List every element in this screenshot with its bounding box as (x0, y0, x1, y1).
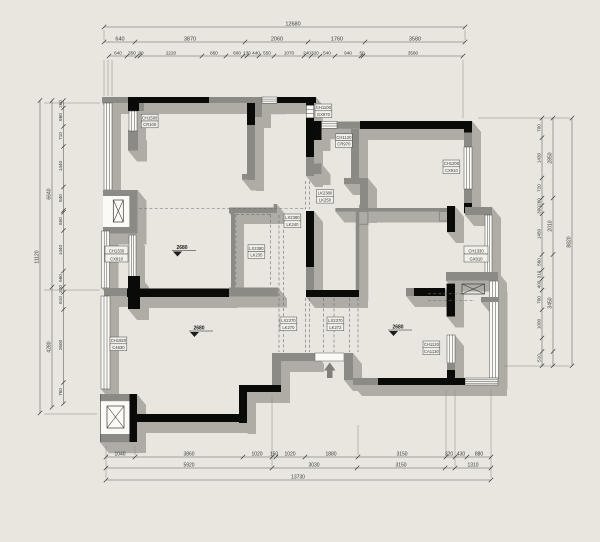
svg-text:3580: 3580 (409, 36, 421, 42)
svg-text:LK250: LK250 (319, 197, 332, 202)
svg-text:LK272: LK272 (329, 325, 342, 330)
svg-text:CH1120: CH1120 (336, 135, 352, 140)
svg-text:5920: 5920 (183, 462, 194, 468)
svg-text:3860: 3860 (183, 451, 194, 457)
svg-text:LK235: LK235 (250, 253, 263, 258)
svg-text:2600: 2600 (58, 339, 63, 350)
svg-text:2680: 2680 (193, 326, 204, 332)
svg-text:600: 600 (233, 50, 241, 55)
svg-text:1020: 1020 (251, 451, 262, 457)
svg-text:1070: 1070 (284, 50, 295, 55)
svg-text:CR970: CR970 (337, 142, 351, 147)
svg-text:710: 710 (58, 132, 63, 140)
svg-text:320: 320 (445, 451, 454, 457)
svg-text:1760: 1760 (331, 36, 343, 42)
svg-text:320: 320 (311, 50, 319, 55)
svg-text:650: 650 (58, 217, 63, 225)
svg-text:CH1100: CH1100 (316, 105, 332, 110)
svg-text:1440: 1440 (58, 160, 63, 171)
svg-text:440: 440 (252, 50, 260, 55)
svg-text:560: 560 (58, 274, 63, 282)
svg-text:CH1200: CH1200 (444, 161, 460, 166)
svg-text:310: 310 (536, 270, 541, 278)
svg-text:CX910: CX910 (110, 256, 123, 261)
svg-text:720: 720 (536, 184, 541, 192)
svg-text:200: 200 (58, 285, 63, 293)
svg-text:260: 260 (536, 198, 541, 206)
svg-text:610: 610 (58, 296, 63, 304)
svg-text:1430: 1430 (536, 152, 541, 163)
svg-text:CH1500: CH1500 (142, 115, 158, 120)
svg-text:2680: 2680 (392, 325, 403, 331)
svg-text:550: 550 (263, 50, 271, 55)
svg-text:CA1130: CA1130 (424, 349, 439, 354)
svg-text:1040: 1040 (114, 451, 125, 457)
svg-text:700: 700 (536, 296, 541, 304)
svg-text:760: 760 (58, 388, 63, 396)
svg-text:LK270: LK270 (282, 325, 295, 330)
svg-text:700: 700 (536, 124, 541, 132)
svg-text:GX910: GX910 (469, 256, 483, 261)
svg-text:560: 560 (536, 258, 541, 266)
svg-text:510: 510 (536, 354, 541, 362)
svg-text:8820: 8820 (566, 236, 572, 247)
svg-text:1440: 1440 (58, 244, 63, 255)
svg-text:3870: 3870 (184, 36, 196, 42)
svg-text:CH1330: CH1330 (468, 248, 484, 253)
svg-text:1880: 1880 (325, 451, 336, 457)
svg-text:880: 880 (475, 451, 484, 457)
svg-text:CR100: CR100 (143, 122, 157, 127)
svg-text:GX970: GX970 (317, 112, 331, 117)
svg-text:3150: 3150 (396, 451, 407, 457)
svg-text:640: 640 (115, 36, 124, 42)
svg-text:2060: 2060 (271, 36, 283, 42)
svg-text:LX2380: LX2380 (285, 215, 300, 220)
svg-text:CH1330: CH1330 (109, 248, 125, 253)
svg-text:150: 150 (270, 451, 279, 457)
svg-text:860: 860 (210, 50, 218, 55)
svg-text:50: 50 (359, 50, 365, 55)
svg-text:1450: 1450 (536, 228, 541, 239)
svg-text:13730: 13730 (291, 474, 305, 480)
svg-text:2850: 2850 (547, 152, 553, 163)
svg-text:90: 90 (138, 50, 144, 55)
svg-text:CH1920: CH1920 (111, 338, 127, 343)
svg-text:3150: 3150 (395, 462, 406, 468)
svg-text:3580: 3580 (408, 50, 419, 55)
svg-text:260: 260 (58, 100, 63, 108)
svg-text:4280: 4280 (46, 341, 52, 352)
svg-text:660: 660 (58, 113, 63, 121)
svg-text:2220: 2220 (166, 50, 177, 55)
svg-text:6640: 6640 (46, 188, 52, 199)
svg-text:LX2370: LX2370 (328, 318, 343, 323)
svg-text:3030: 3030 (308, 462, 319, 468)
svg-text:1020: 1020 (284, 451, 295, 457)
svg-text:1000: 1000 (536, 318, 541, 329)
svg-text:300: 300 (536, 206, 541, 214)
svg-text:11120: 11120 (34, 250, 40, 263)
svg-text:LX2370: LX2370 (281, 318, 296, 323)
svg-text:LK2380: LK2380 (318, 191, 333, 196)
svg-text:430: 430 (457, 451, 466, 457)
svg-text:640: 640 (114, 50, 122, 55)
svg-text:12680: 12680 (285, 21, 300, 27)
svg-text:3450: 3450 (547, 297, 553, 308)
svg-text:LK240: LK240 (286, 222, 299, 227)
svg-text:400: 400 (536, 280, 541, 288)
svg-text:LX2380: LX2380 (249, 246, 264, 251)
svg-text:2680: 2680 (176, 245, 187, 251)
svg-text:940: 940 (344, 50, 352, 55)
svg-text:1310: 1310 (467, 462, 478, 468)
svg-text:C4630: C4630 (112, 345, 125, 350)
svg-text:CH1120: CH1120 (424, 342, 440, 347)
svg-text:540: 540 (323, 50, 331, 55)
svg-text:130: 130 (243, 50, 251, 55)
svg-text:240: 240 (303, 50, 311, 55)
svg-text:2010: 2010 (547, 220, 553, 231)
svg-text:350: 350 (128, 50, 136, 55)
svg-text:CX910: CX910 (445, 168, 458, 173)
svg-text:840: 840 (58, 194, 63, 202)
